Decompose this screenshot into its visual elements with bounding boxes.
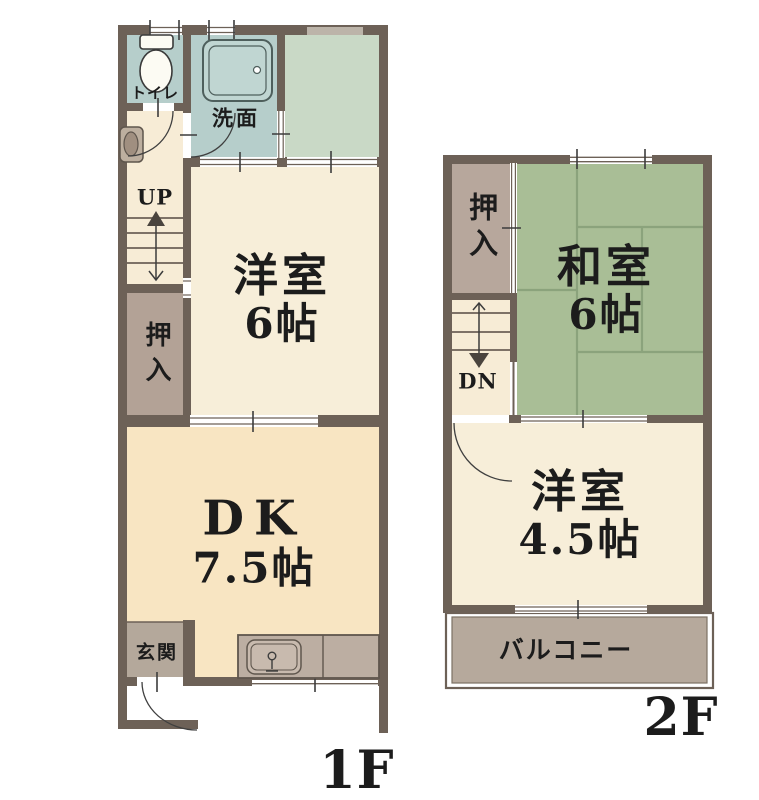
closet-2f-label: 押入 bbox=[465, 192, 496, 264]
window-notch bbox=[307, 27, 363, 35]
room-size: 6帖 bbox=[244, 301, 319, 346]
floorplan-drawing bbox=[0, 0, 759, 800]
floor-label-1f: 1F bbox=[319, 743, 394, 799]
toilet-label: トイレ bbox=[131, 85, 179, 101]
wash-basin-icon bbox=[120, 127, 143, 162]
room-size: 4.5帖 bbox=[518, 517, 641, 562]
closet-1f-label: 押入 bbox=[142, 321, 170, 391]
room-name: 和室 bbox=[557, 243, 655, 292]
kitchen-counter bbox=[238, 635, 379, 678]
room-size: 7.5帖 bbox=[192, 545, 315, 590]
stairs-up-label: UP bbox=[137, 187, 173, 210]
room-name: DK bbox=[202, 493, 305, 545]
room-label-dk: DK 7.5帖 bbox=[192, 493, 315, 590]
room-label-yoshitsu-1f: 洋室 6帖 bbox=[233, 252, 331, 346]
balcony-label: バルコニー bbox=[499, 637, 634, 664]
stairs-down-label: DN bbox=[458, 371, 497, 394]
bathtub-icon bbox=[203, 40, 272, 101]
floor-label-2f: 2F bbox=[643, 690, 718, 746]
genkan-label: 玄関 bbox=[136, 643, 178, 664]
room-name: 洋室 bbox=[233, 252, 331, 301]
floorplan-page: トイレ 洗面 UP 押入 洋室 6帖 DK 7.5帖 玄関 1F 押入 DN 和… bbox=[0, 0, 759, 800]
room-name: 洋室 bbox=[531, 468, 629, 517]
room-green bbox=[285, 34, 379, 158]
kitchen-sink-icon bbox=[247, 640, 301, 674]
room-size: 6帖 bbox=[568, 292, 643, 337]
room-label-yoshitsu-2f: 洋室 4.5帖 bbox=[518, 468, 641, 562]
washroom-label: 洗面 bbox=[212, 108, 260, 131]
room-label-washitsu: 和室 6帖 bbox=[557, 243, 655, 337]
